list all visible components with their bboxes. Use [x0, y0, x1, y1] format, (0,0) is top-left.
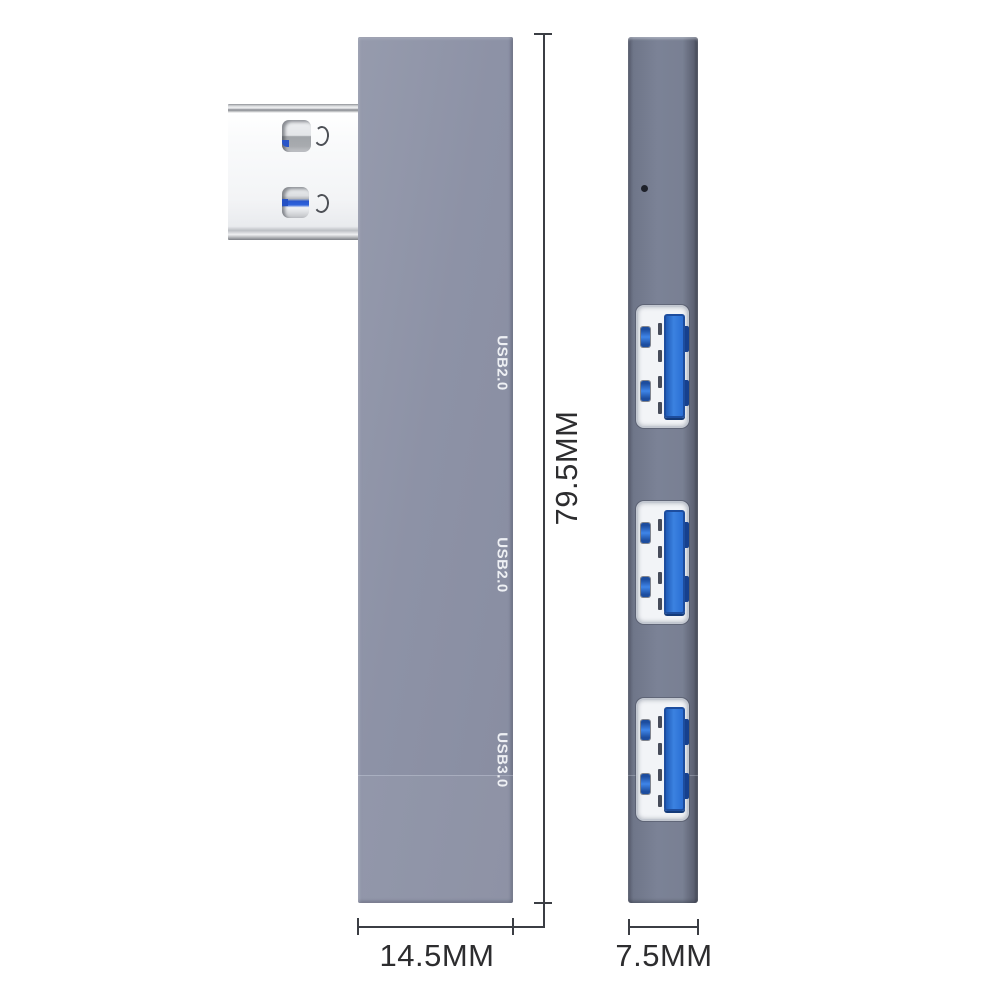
- port-contact-left-top: [641, 720, 650, 740]
- usb-hub-dimension-diagram: USB2.0 USB2.0 USB3.0 79.5MM 14.5MM: [0, 0, 1001, 1001]
- port-pin-mark: [658, 769, 662, 781]
- port-pin-mark: [658, 598, 662, 610]
- port-contact-left-bottom: [641, 774, 650, 794]
- height-dimension-label: 79.5MM: [549, 411, 585, 526]
- led-indicator-icon: [641, 185, 648, 192]
- usb-port-side-1: [636, 305, 689, 428]
- port-pin-mark: [658, 743, 662, 755]
- width-dimension-right-tick: [512, 918, 514, 935]
- port-label-usb2-middle: USB2.0: [494, 537, 511, 593]
- depth-dimension-left-tick: [628, 919, 630, 935]
- port-pin-mark: [658, 572, 662, 584]
- port-contact-left-bottom: [641, 577, 650, 597]
- port-pin-mark: [658, 716, 662, 728]
- width-dimension-line: [358, 926, 545, 928]
- width-dimension-label: 14.5MM: [380, 938, 495, 974]
- port-pin-mark: [658, 519, 662, 531]
- usb-plug-contact-hook-top-icon: [313, 125, 330, 146]
- usb-port-tongue: [664, 314, 685, 418]
- usb-port-side-2: [636, 501, 689, 624]
- port-pin-mark: [658, 402, 662, 414]
- port-label-usb2-top: USB2.0: [494, 335, 511, 391]
- usb-port-side-3: [636, 698, 689, 821]
- usb-plug-window-top: [282, 120, 311, 152]
- usb-port-tongue: [664, 510, 685, 614]
- depth-dimension-label: 7.5MM: [615, 938, 712, 974]
- usb-plug-contact-hook-bottom-icon: [313, 193, 330, 213]
- depth-dimension-line: [629, 926, 699, 928]
- port-contact-left-top: [641, 327, 650, 347]
- height-dimension-bottom-tick: [534, 902, 552, 904]
- port-pin-mark: [658, 376, 662, 388]
- usb-plug-window-bottom: [282, 187, 309, 218]
- width-dimension-left-tick: [357, 918, 359, 935]
- usb-a-plug: [228, 104, 360, 240]
- port-contact-left-top: [641, 523, 650, 543]
- height-dimension-line: [543, 34, 545, 927]
- front-lower-section: [358, 776, 513, 903]
- port-pin-mark: [658, 323, 662, 335]
- port-label-usb3-bottom: USB3.0: [494, 732, 511, 788]
- hub-front-view: USB2.0 USB2.0 USB3.0: [358, 37, 513, 903]
- port-pin-mark: [658, 795, 662, 807]
- port-contact-left-bottom: [641, 381, 650, 401]
- usb-port-tongue: [664, 707, 685, 811]
- port-pin-mark: [658, 350, 662, 362]
- depth-dimension-right-tick: [697, 919, 699, 935]
- port-pin-mark: [658, 546, 662, 558]
- hub-side-view: [628, 37, 698, 903]
- height-dimension-top-tick: [534, 33, 552, 35]
